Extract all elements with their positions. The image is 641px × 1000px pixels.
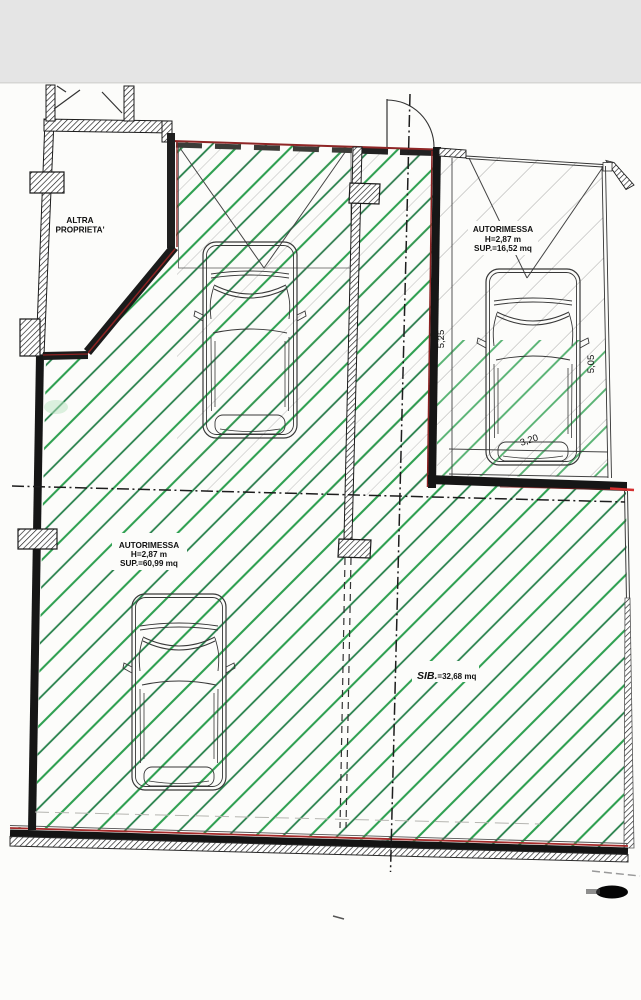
svg-text:AUTORIMESSA: AUTORIMESSA — [473, 225, 533, 234]
svg-text:AUTORIMESSA: AUTORIMESSA — [119, 541, 179, 550]
svg-text:PROPRIETA': PROPRIETA' — [55, 226, 104, 235]
svg-text:ALTRA: ALTRA — [66, 216, 93, 225]
svg-text:SUP.=60,99 mq: SUP.=60,99 mq — [120, 559, 178, 568]
svg-text:5,05: 5,05 — [586, 355, 597, 374]
svg-text:5,25: 5,25 — [436, 330, 447, 349]
svg-text:H=2,87 m: H=2,87 m — [485, 235, 521, 244]
svg-text:H=2,87 m: H=2,87 m — [131, 550, 167, 559]
svg-text:SUP.=16,52 mq: SUP.=16,52 mq — [474, 244, 532, 253]
svg-text:SIB.=32,68 mq: SIB.=32,68 mq — [417, 670, 476, 682]
